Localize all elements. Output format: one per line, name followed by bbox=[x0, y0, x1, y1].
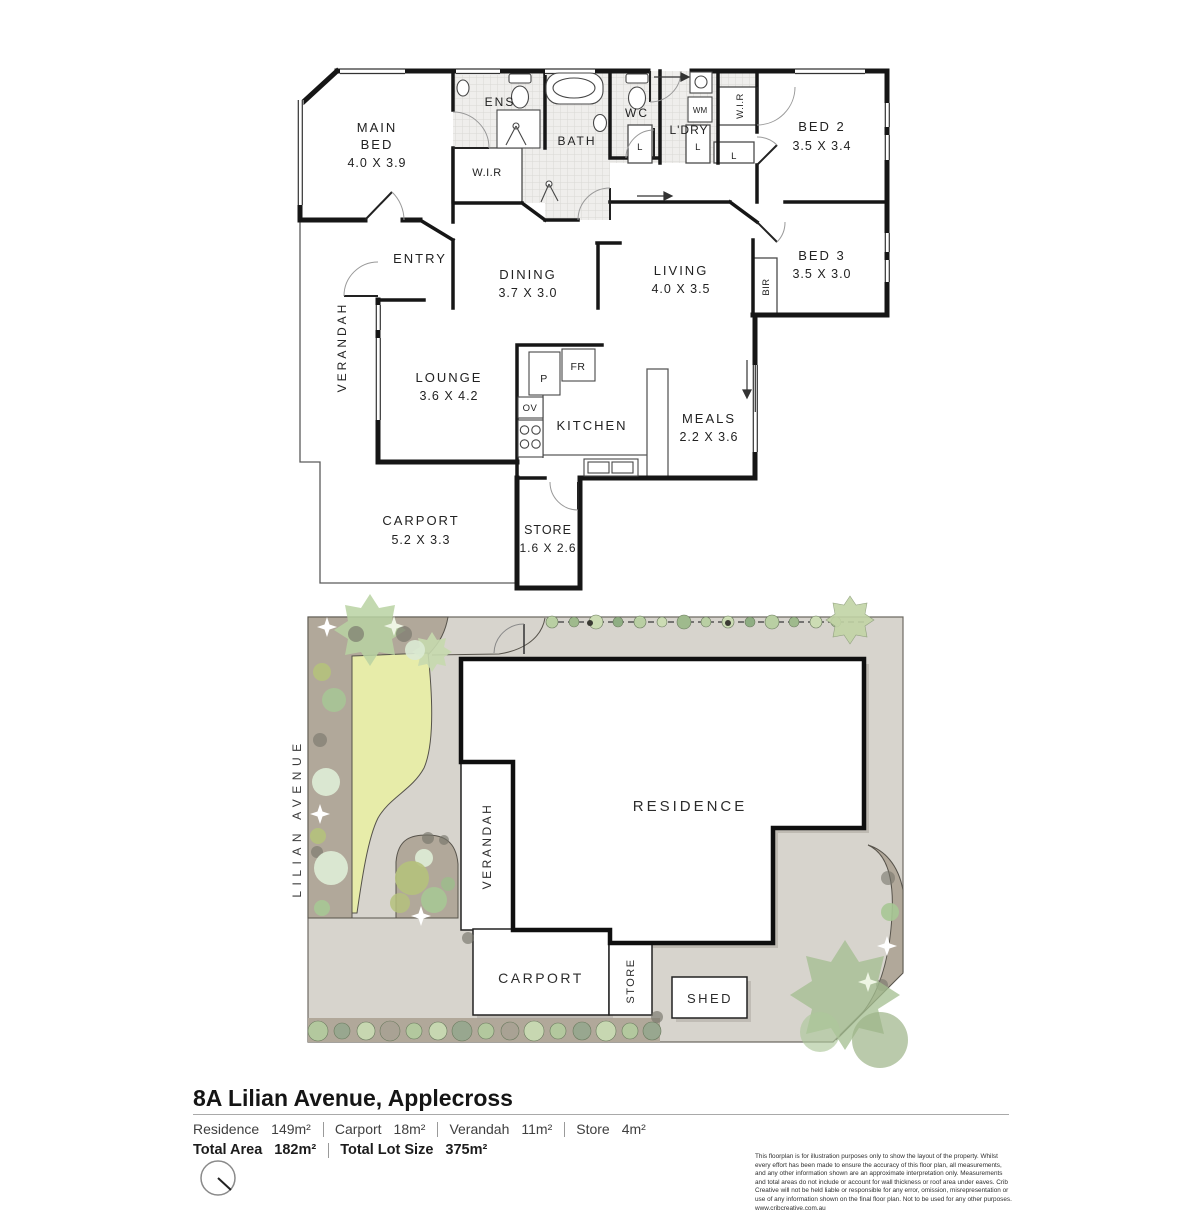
label-main-bed-2: BED bbox=[361, 137, 394, 152]
compass-icon bbox=[201, 1161, 235, 1195]
dims-dining: 3.7 X 3.0 bbox=[498, 286, 557, 300]
plan-image: MAIN BED 4.0 X 3.9 ENS BATH W.I.R WC L'D… bbox=[0, 0, 1200, 1200]
label-dining: DINING bbox=[499, 267, 557, 282]
burner bbox=[520, 440, 528, 448]
label-ens: ENS bbox=[485, 95, 516, 109]
label-living: LIVING bbox=[654, 263, 709, 278]
sink-bowl bbox=[588, 462, 609, 473]
ens-toilet-tank bbox=[509, 74, 531, 83]
dims-bed2: 3.5 X 3.4 bbox=[792, 139, 851, 153]
label-bath: BATH bbox=[557, 134, 596, 148]
street-name: LILIAN AVENUE bbox=[290, 738, 304, 897]
label-bir: BIR bbox=[761, 278, 772, 295]
bath-tub-inner bbox=[553, 78, 595, 98]
burner bbox=[520, 426, 528, 434]
label-oven: OV bbox=[523, 403, 538, 414]
open-area-outlines bbox=[300, 220, 668, 583]
label-wir-main: W.I.R bbox=[472, 167, 501, 179]
label-linen-2: L bbox=[695, 142, 701, 153]
label-linen-1: L bbox=[637, 142, 643, 153]
label-wir-bed2: W.I.R bbox=[735, 93, 746, 119]
label-residence: RESIDENCE bbox=[633, 798, 748, 815]
ens-shower bbox=[497, 110, 540, 148]
label-carport-plan: CARPORT bbox=[382, 513, 459, 528]
shrub bbox=[651, 1011, 663, 1023]
sink-bowl bbox=[612, 462, 633, 473]
label-ldry: L'DRY bbox=[669, 123, 708, 137]
label-bed2: BED 2 bbox=[798, 119, 846, 134]
dims-carport: 5.2 X 3.3 bbox=[391, 533, 450, 547]
label-verandah-site: VERANDAH bbox=[480, 803, 494, 890]
label-entry: ENTRY bbox=[393, 251, 447, 266]
label-kitchen: KITCHEN bbox=[556, 418, 627, 433]
dims-lounge: 3.6 X 4.2 bbox=[419, 389, 478, 403]
label-meals: MEALS bbox=[682, 411, 736, 426]
hedge-star-tree bbox=[826, 596, 874, 644]
ens-basin bbox=[457, 80, 469, 96]
label-fridge: FR bbox=[571, 361, 586, 373]
burner bbox=[532, 426, 540, 434]
label-wc: WC bbox=[625, 106, 649, 120]
label-pantry: P bbox=[540, 373, 548, 385]
kitchen-peninsula bbox=[647, 369, 668, 478]
burner bbox=[532, 440, 540, 448]
label-wm: WM bbox=[693, 106, 708, 115]
bath-basin bbox=[594, 115, 607, 132]
cooktop-box bbox=[518, 420, 543, 457]
label-linen-3: L bbox=[731, 151, 737, 162]
dims-main-bed: 4.0 X 3.9 bbox=[347, 156, 406, 170]
dims-store: 1.6 X 2.6 bbox=[519, 541, 576, 555]
dims-meals: 2.2 X 3.6 bbox=[679, 430, 738, 444]
label-carport-site: CARPORT bbox=[498, 970, 584, 986]
label-shed: SHED bbox=[687, 991, 733, 1006]
label-main-bed: MAIN bbox=[357, 120, 398, 135]
dims-living: 4.0 X 3.5 bbox=[651, 282, 710, 296]
label-lounge: LOUNGE bbox=[416, 370, 483, 385]
laundry-trough-bowl bbox=[695, 76, 707, 88]
floor-plan: MAIN BED 4.0 X 3.9 ENS BATH W.I.R WC L'D… bbox=[297, 68, 891, 588]
shrub bbox=[462, 932, 474, 944]
label-store-plan: STORE bbox=[524, 523, 572, 537]
label-bed3: BED 3 bbox=[798, 248, 846, 263]
wc-toilet-tank bbox=[626, 74, 648, 83]
bottom-hedge bbox=[308, 1021, 661, 1041]
label-verandah-plan: VERANDAH bbox=[335, 302, 349, 393]
dims-bed3: 3.5 X 3.0 bbox=[792, 267, 851, 281]
disclaimer-website: www.cribcreative.com.au bbox=[755, 1205, 1013, 1213]
site-plan: RESIDENCE VERANDAH CARPORT STORE SHED LI… bbox=[290, 594, 908, 1068]
label-store-site: STORE bbox=[625, 958, 637, 1003]
